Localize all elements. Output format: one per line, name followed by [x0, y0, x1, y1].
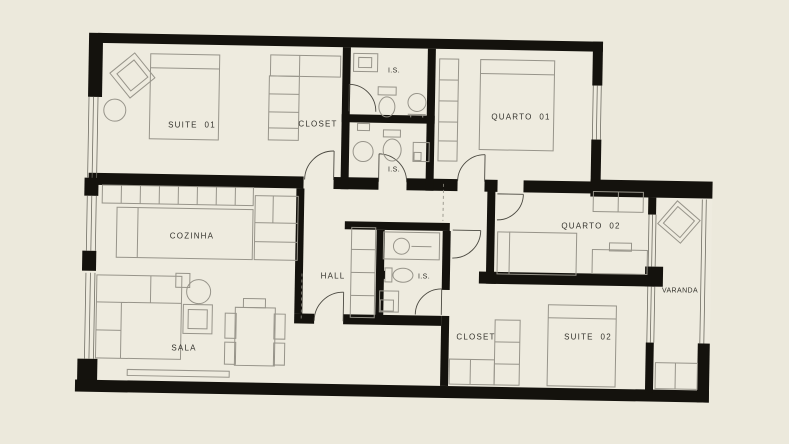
room-label-sala: SALA: [171, 344, 196, 353]
floor-plan: SUITE 01 CLOSET I.S. I.S. QUARTO 01 COZI…: [0, 0, 789, 444]
room-label-suite-02: SUITE 02: [564, 333, 612, 342]
room-label-quarto-02: QUARTO 02: [561, 222, 620, 231]
room-label-quarto-01: QUARTO 01: [491, 113, 550, 122]
room-label-is-mid: I.S.: [388, 167, 400, 174]
room-label-cozinha: COZINHA: [170, 232, 214, 241]
room-label-is-lower: I.S.: [418, 274, 430, 281]
room-label-closet-suite-02: CLOSET: [456, 333, 495, 342]
room-label-closet-suite-01: CLOSET: [298, 120, 337, 129]
room-label-hall: HALL: [321, 272, 346, 281]
room-label-suite-01: SUITE 01: [168, 121, 216, 130]
room-label-is-top: I.S.: [388, 68, 400, 75]
room-label-varanda: VARANDA: [662, 288, 698, 295]
